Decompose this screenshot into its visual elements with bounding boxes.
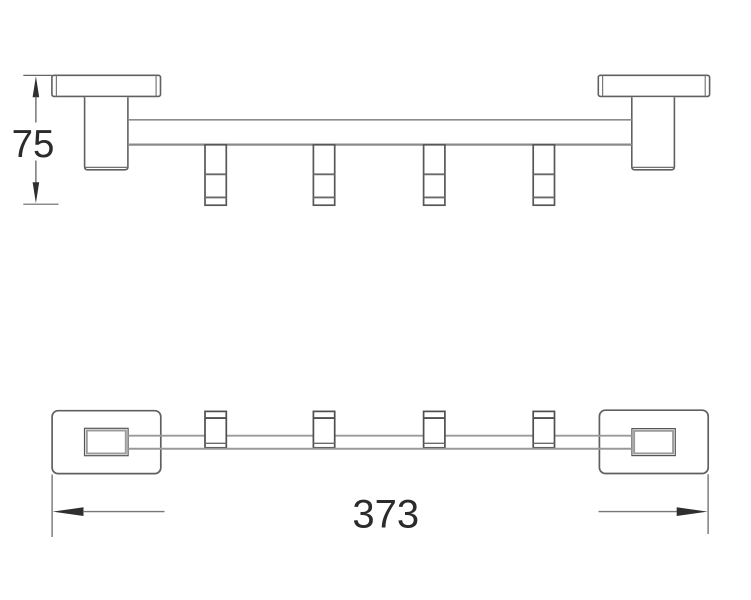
svg-text:373: 373 <box>352 492 419 536</box>
svg-text:75: 75 <box>12 123 55 166</box>
